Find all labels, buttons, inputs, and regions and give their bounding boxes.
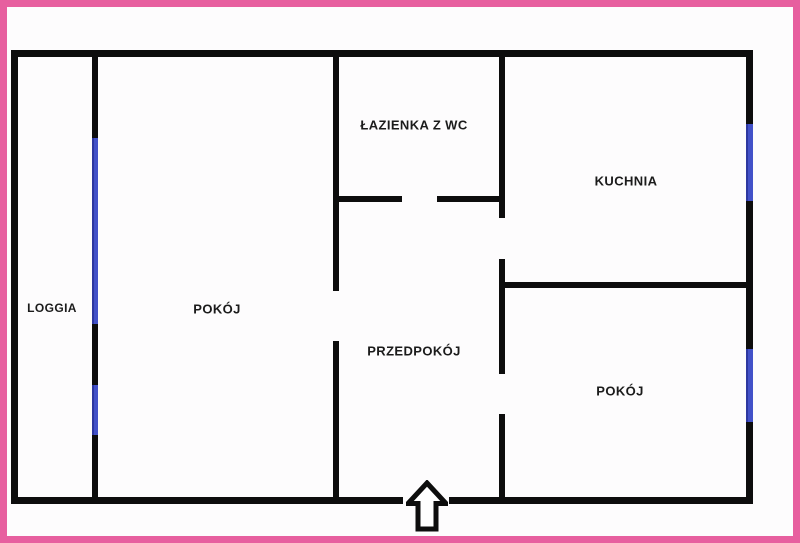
outer-wall-bottom-left xyxy=(11,497,403,504)
room-label-lazienka: ŁAZIENKA Z WC xyxy=(360,118,467,133)
room-label-pokoj-right: POKÓJ xyxy=(596,384,644,399)
window-kuchnia xyxy=(746,124,753,201)
loggia-wall-lower xyxy=(92,435,98,504)
outer-wall-right-middle xyxy=(746,201,753,349)
outer-wall-right-upper xyxy=(746,50,753,124)
kuchnia-wall-upper xyxy=(499,50,505,218)
pink-border-left xyxy=(0,0,7,543)
kuchnia-wall-middle xyxy=(499,259,505,374)
outer-wall-bottom-right xyxy=(449,497,753,504)
window-loggia-upper xyxy=(92,138,98,324)
bathroom-wall-right xyxy=(437,196,505,202)
bathroom-wall-left xyxy=(333,196,402,202)
room-label-przedpokoj: PRZEDPOKÓJ xyxy=(367,344,461,359)
loggia-wall-upper xyxy=(92,50,98,138)
pink-border-bottom xyxy=(0,536,800,543)
floor-plan: LOGGIA POKÓJ ŁAZIENKA Z WC KUCHNIA PRZED… xyxy=(0,0,800,543)
pink-border-top xyxy=(0,0,800,7)
entrance-arrow-icon xyxy=(406,480,448,532)
room-label-kuchnia: KUCHNIA xyxy=(595,174,658,189)
loggia-wall-middle xyxy=(92,324,98,385)
outer-wall-top xyxy=(11,50,753,57)
pokoj-hall-wall-upper xyxy=(333,50,339,291)
kuchnia-wall-lower xyxy=(499,414,505,504)
window-pokoj-right xyxy=(746,349,753,422)
window-loggia-lower xyxy=(92,385,98,435)
room-label-pokoj-left: POKÓJ xyxy=(193,302,241,317)
pokoj-hall-wall-lower xyxy=(333,341,339,504)
outer-wall-left xyxy=(11,50,18,504)
room-label-loggia: LOGGIA xyxy=(27,301,77,315)
pink-border-right xyxy=(793,0,800,543)
outer-wall-right-lower xyxy=(746,422,753,504)
kuchnia-pokoj-divider xyxy=(499,282,753,288)
